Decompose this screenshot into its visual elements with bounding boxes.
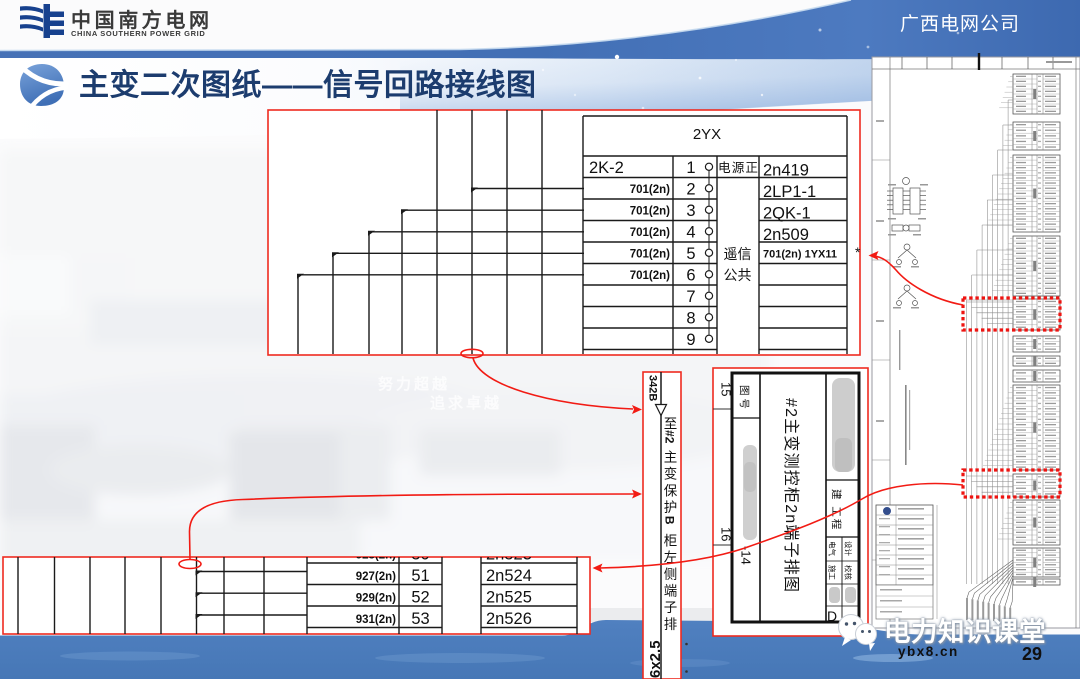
svg-text:2n509: 2n509 <box>763 226 809 244</box>
svg-text:2n419: 2n419 <box>763 162 809 180</box>
svg-text:51: 51 <box>411 567 429 585</box>
svg-text:施工: 施工 <box>828 565 838 580</box>
svg-text:端: 端 <box>664 584 678 599</box>
svg-text:2: 2 <box>686 180 695 198</box>
svg-text:3: 3 <box>686 202 695 220</box>
svg-text:9: 9 <box>686 331 695 349</box>
svg-text:2n524: 2n524 <box>486 567 532 585</box>
svg-text:*: * <box>855 244 861 260</box>
svg-text:2LP1-1: 2LP1-1 <box>763 183 816 201</box>
svg-text:701(2n): 701(2n) <box>630 184 670 196</box>
svg-text:CHINA SOUTHERN POWER GRID: CHINA SOUTHERN POWER GRID <box>71 29 205 38</box>
svg-text:保: 保 <box>664 483 678 498</box>
svg-text:7: 7 <box>686 288 695 306</box>
svg-text:校核: 校核 <box>844 565 854 580</box>
svg-text:2n526: 2n526 <box>486 610 532 628</box>
svg-text:701(2n): 701(2n) <box>630 249 670 261</box>
svg-text:电气: 电气 <box>828 541 838 556</box>
svg-text:2n525: 2n525 <box>486 589 532 607</box>
svg-text:701(2n): 701(2n) <box>630 227 670 239</box>
svg-text:52: 52 <box>411 589 429 607</box>
svg-text:701(2n): 701(2n) <box>630 206 670 218</box>
svg-text:929(2n): 929(2n) <box>356 593 396 605</box>
svg-text:8: 8 <box>686 309 695 327</box>
svg-text:53: 53 <box>411 610 429 628</box>
svg-text:追求卓越: 追求卓越 <box>430 394 502 412</box>
svg-text:电力知识课堂: 电力知识课堂 <box>884 617 1046 647</box>
svg-text:设计: 设计 <box>844 541 854 556</box>
svg-text:ybx8.cn: ybx8.cn <box>898 644 959 659</box>
svg-text:广西电网公司: 广西电网公司 <box>900 13 1020 35</box>
svg-text:701(2n): 701(2n) <box>630 270 670 282</box>
svg-text:排: 排 <box>664 617 678 632</box>
svg-text:4: 4 <box>686 223 695 241</box>
svg-text:D: D <box>827 608 837 624</box>
svg-text:6x2.5: 6x2.5 <box>647 640 664 678</box>
svg-text:变: 变 <box>664 467 678 482</box>
svg-text:主: 主 <box>664 450 678 465</box>
svg-text:电源正: 电源正 <box>718 161 758 175</box>
svg-text:5: 5 <box>686 245 695 263</box>
svg-text:图 号: 图 号 <box>738 385 750 409</box>
svg-text:2YX: 2YX <box>693 126 721 143</box>
svg-text:#2主变测控柜2n端子排图: #2主变测控柜2n端子排图 <box>782 398 800 593</box>
svg-text:6: 6 <box>686 266 695 284</box>
svg-text:遥信: 遥信 <box>724 246 752 262</box>
svg-text:柜: 柜 <box>664 533 678 548</box>
svg-text:侧: 侧 <box>664 567 678 582</box>
svg-text:927(2n): 927(2n) <box>356 571 396 583</box>
svg-text:B: B <box>663 516 677 525</box>
svg-text:主变二次图纸——信号回路接线图: 主变二次图纸——信号回路接线图 <box>79 68 537 102</box>
svg-text:931(2n): 931(2n) <box>356 614 396 626</box>
svg-text:努力超越: 努力超越 <box>378 375 450 393</box>
svg-text:701(2n) 1YX11: 701(2n) 1YX11 <box>763 249 837 261</box>
svg-text:#2: #2 <box>663 430 677 444</box>
svg-text:公共: 公共 <box>724 267 752 283</box>
svg-text:1: 1 <box>686 159 695 177</box>
svg-text:2K-2: 2K-2 <box>589 159 624 177</box>
svg-text:护: 护 <box>664 500 678 515</box>
svg-text:29: 29 <box>1022 644 1042 664</box>
svg-text:2QK-1: 2QK-1 <box>763 205 811 223</box>
svg-text:子: 子 <box>664 600 678 615</box>
svg-text:342B: 342B <box>647 375 659 401</box>
